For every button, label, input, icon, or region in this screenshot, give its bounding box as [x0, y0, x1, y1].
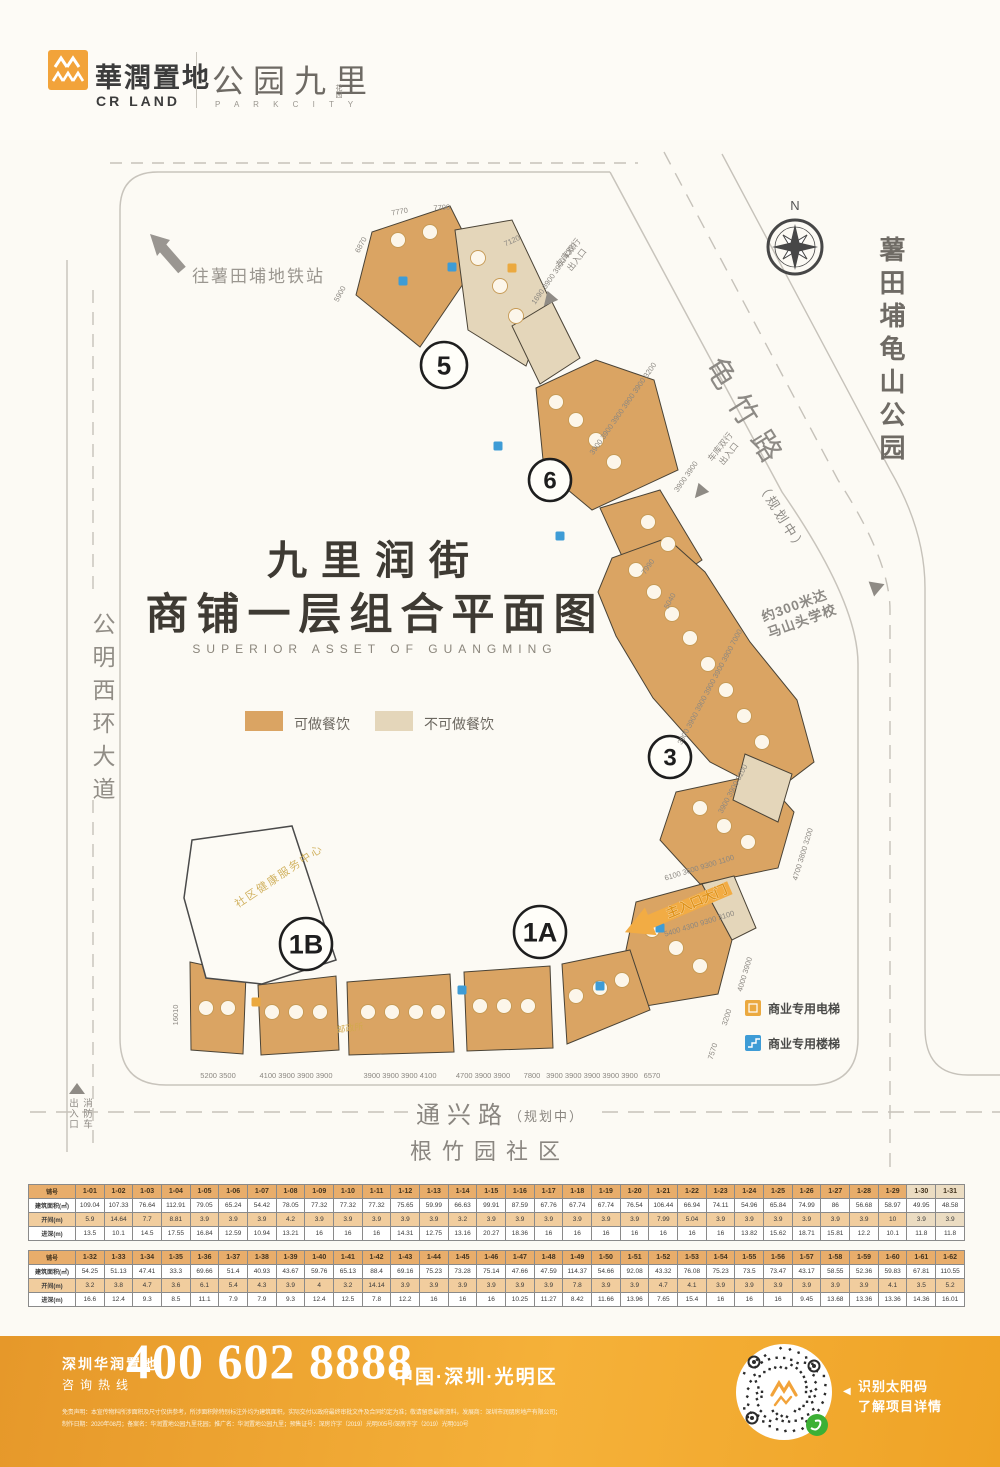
table-cell: 13.16 — [448, 1227, 477, 1241]
table-cell: 16 — [678, 1227, 707, 1241]
row-label: 进深(m) — [29, 1293, 76, 1307]
table-cell: 3.9 — [821, 1213, 850, 1227]
table-cell: 3.9 — [334, 1213, 363, 1227]
table-cell: 16 — [305, 1227, 334, 1241]
legend-stairs: 商业专用楼梯 — [745, 1035, 840, 1051]
table-cell: 67.81 — [907, 1265, 936, 1279]
table-cell: 65.13 — [334, 1265, 363, 1279]
table-cell: 59.99 — [420, 1199, 449, 1213]
table-cell: 1-40 — [305, 1251, 334, 1265]
qr-dot — [769, 1425, 771, 1427]
table-cell: 1-29 — [878, 1185, 907, 1199]
table-cell: 3.9 — [534, 1279, 563, 1293]
table-cell: 13.68 — [821, 1293, 850, 1307]
dimension-label: 7570 — [706, 1042, 719, 1061]
shop-number-marker — [669, 941, 684, 956]
table-cell: 4 — [305, 1279, 334, 1293]
shop-number-marker — [497, 999, 512, 1014]
legend-elevator-label: 商业专用电梯 — [768, 1001, 840, 1016]
table-cell: 66.94 — [678, 1199, 707, 1213]
row-label: 开间(m) — [29, 1213, 76, 1227]
table-cell: 114.37 — [563, 1265, 592, 1279]
table-cell: 3.9 — [391, 1213, 420, 1227]
table-cell: 1-48 — [534, 1251, 563, 1265]
table-cell: 1-03 — [133, 1185, 162, 1199]
table-cell: 4.1 — [678, 1279, 707, 1293]
table-cell: 7.9 — [219, 1293, 248, 1307]
table-cell: 3.9 — [821, 1279, 850, 1293]
table-cell: 77.32 — [362, 1199, 391, 1213]
stairs-icon — [448, 263, 457, 272]
table-cell: 16 — [334, 1227, 363, 1241]
table-row: 开间(m)5.914.647.78.813.93.93.94.23.93.93.… — [29, 1213, 965, 1227]
table-cell: 3.9 — [276, 1279, 305, 1293]
table-cell: 1-42 — [362, 1251, 391, 1265]
table-cell: 11.8 — [907, 1227, 936, 1241]
fire-entrance-label-2: 出入口 — [65, 1098, 79, 1130]
table-cell: 4.7 — [133, 1279, 162, 1293]
shop-number-marker — [265, 1005, 280, 1020]
table-cell: 1-37 — [219, 1251, 248, 1265]
table-cell: 3.9 — [534, 1213, 563, 1227]
table-cell: 16 — [534, 1227, 563, 1241]
shop-number-marker — [361, 1005, 376, 1020]
table-cell: 3.9 — [362, 1213, 391, 1227]
table-cell: 1-39 — [276, 1251, 305, 1265]
table-cell: 3.9 — [506, 1279, 535, 1293]
dimension-label: 6570 — [644, 1071, 661, 1080]
table-cell: 47.41 — [133, 1265, 162, 1279]
crland-logo-icon — [48, 50, 88, 90]
table-cell: 11.1 — [190, 1293, 219, 1307]
crland-name-en: CR LAND — [96, 93, 180, 109]
table-cell: 16 — [420, 1293, 449, 1307]
qr-dot — [805, 1391, 807, 1393]
table-cell: 14.36 — [907, 1293, 936, 1307]
shop-number-marker — [569, 989, 584, 1004]
subway-direction-label: 往薯田埔地铁站 — [192, 262, 325, 287]
table-cell: 14.64 — [104, 1213, 133, 1227]
table-cell: 54.96 — [735, 1199, 764, 1213]
table-cell: 3.2 — [76, 1279, 105, 1293]
table-cell: 3.9 — [735, 1213, 764, 1227]
table-cell: 73.5 — [735, 1265, 764, 1279]
table-cell: 87.59 — [506, 1199, 535, 1213]
table-cell: 7.7 — [133, 1213, 162, 1227]
table-cell: 1-53 — [678, 1251, 707, 1265]
table-cell: 3.9 — [907, 1213, 936, 1227]
footer: 深圳华润置地 咨询热线 400 602 8888 中国·深圳·光明区 ◀ 识别太… — [0, 1336, 1000, 1467]
table-cell: 16 — [620, 1227, 649, 1241]
fire-entrance-arrow-icon — [69, 1083, 85, 1094]
legend-catering-swatch — [245, 711, 283, 731]
table-cell: 13.5 — [76, 1227, 105, 1241]
shop-number-marker — [289, 1005, 304, 1020]
dimension-label: 16010 — [171, 1005, 180, 1026]
table-cell: 73.47 — [764, 1265, 793, 1279]
table-row: 建筑面积(㎡)109.04107.3376.64112.9179.0565.24… — [29, 1199, 965, 1213]
legend-elevator: 商业专用电梯 — [745, 1000, 840, 1016]
qr-dot — [801, 1417, 804, 1420]
table-cell: 4.2 — [276, 1213, 305, 1227]
table-cell: 14.14 — [362, 1279, 391, 1293]
table-cell: 1-18 — [563, 1185, 592, 1199]
table-cell: 3.9 — [735, 1279, 764, 1293]
table-cell: 3.9 — [592, 1279, 621, 1293]
table-cell: 4.3 — [248, 1279, 277, 1293]
qr-dot — [788, 1420, 791, 1423]
table-cell: 1-43 — [391, 1251, 420, 1265]
table-cell: 54.42 — [248, 1199, 277, 1213]
plan-title: 九里润街 — [0, 528, 750, 586]
table-cell: 106.44 — [649, 1199, 678, 1213]
table-cell: 16.6 — [76, 1293, 105, 1307]
table-cell: 15.4 — [678, 1293, 707, 1307]
dimension-label: 7800 — [524, 1071, 541, 1080]
table-cell: 16 — [477, 1293, 506, 1307]
table-cell: 58.55 — [821, 1265, 850, 1279]
table-cell: 76.64 — [133, 1199, 162, 1213]
table-cell: 3.9 — [706, 1213, 735, 1227]
table-cell: 1-47 — [506, 1251, 535, 1265]
table-cell: 1-13 — [420, 1185, 449, 1199]
zone-number: 5 — [437, 350, 451, 380]
shop-number-marker — [755, 735, 770, 750]
table-cell: 4.1 — [878, 1279, 907, 1293]
table-cell: 1-32 — [76, 1251, 105, 1265]
table-cell: 3.9 — [420, 1279, 449, 1293]
qr-dot — [824, 1384, 827, 1387]
qr-dot — [783, 1357, 785, 1359]
legend-no-catering-label: 不可做餐饮 — [424, 714, 494, 734]
table-cell: 1-25 — [764, 1185, 793, 1199]
table-cell: 48.58 — [936, 1199, 965, 1213]
qr-dot — [794, 1420, 796, 1422]
table-cell: 65.84 — [764, 1199, 793, 1213]
table-cell: 5.2 — [936, 1279, 965, 1293]
table-cell: 3.9 — [592, 1213, 621, 1227]
table-cell: 51.4 — [219, 1265, 248, 1279]
table-cell: 16 — [735, 1293, 764, 1307]
table-cell: 1-45 — [448, 1251, 477, 1265]
table-cell: 69.16 — [391, 1265, 420, 1279]
table-cell: 10.25 — [506, 1293, 535, 1307]
table-cell: 10.94 — [248, 1227, 277, 1241]
school-arrow-icon — [869, 577, 888, 597]
table-cell: 1-08 — [276, 1185, 305, 1199]
garage-entrance-1: 车库双行 出入口 — [706, 430, 744, 470]
table-cell: 3.8 — [104, 1279, 133, 1293]
shop-number-marker — [409, 1005, 424, 1020]
fire-entrance-label-1: 消防车 — [79, 1098, 93, 1130]
table-cell: 112.91 — [162, 1199, 191, 1213]
dimension-label: 7770 — [391, 206, 409, 218]
table-cell: 11.27 — [534, 1293, 563, 1307]
shop-number-marker — [221, 1001, 236, 1016]
table-cell: 56.68 — [850, 1199, 879, 1213]
table-cell: 1-20 — [620, 1185, 649, 1199]
table-row: 铺号1-321-331-341-351-361-371-381-391-401-… — [29, 1251, 965, 1265]
table-cell: 1-10 — [334, 1185, 363, 1199]
project-name-cn: 公园九里 — [212, 56, 376, 102]
table-cell: 1-54 — [706, 1251, 735, 1265]
table-cell: 7.9 — [248, 1293, 277, 1307]
table-cell: 3.9 — [936, 1213, 965, 1227]
qr-dot — [805, 1386, 808, 1389]
table-row: 铺号1-011-021-031-041-051-061-071-081-091-… — [29, 1185, 965, 1199]
table-cell: 12.2 — [850, 1227, 879, 1241]
dimension-label: 5900 — [332, 284, 348, 303]
table-cell: 16 — [706, 1293, 735, 1307]
shop-table-2: 铺号1-321-331-341-351-361-371-381-391-401-… — [28, 1250, 965, 1307]
shop-table-1: 铺号1-011-021-031-041-051-061-071-081-091-… — [28, 1184, 965, 1241]
table-cell: 3.9 — [563, 1213, 592, 1227]
row-label: 进深(m) — [29, 1227, 76, 1241]
table-cell: 3.2 — [448, 1213, 477, 1227]
table-cell: 1-41 — [334, 1251, 363, 1265]
table-cell: 12.4 — [104, 1293, 133, 1307]
qr-dot — [823, 1375, 825, 1377]
table-cell: 17.55 — [162, 1227, 191, 1241]
table-cell: 1-09 — [305, 1185, 334, 1199]
table-cell: 1-56 — [764, 1251, 793, 1265]
table-cell: 16 — [764, 1293, 793, 1307]
mountain-icon — [48, 50, 88, 90]
table-cell: 3.9 — [792, 1279, 821, 1293]
table-cell: 3.9 — [620, 1279, 649, 1293]
shop-number-marker — [313, 1005, 328, 1020]
table-cell: 3.9 — [850, 1279, 879, 1293]
shop-number-marker — [607, 455, 622, 470]
table-cell: 67.74 — [592, 1199, 621, 1213]
shop-number-marker — [693, 959, 708, 974]
table-cell: 7.8 — [362, 1293, 391, 1307]
poster-page: 華潤置地 CR LAND 公园九里 花园 P A R K C I T Y — [0, 0, 1000, 1467]
shop-number-marker — [741, 835, 756, 850]
table-cell: 8.81 — [162, 1213, 191, 1227]
qr-dot — [808, 1395, 811, 1398]
shop-number-marker — [493, 279, 508, 294]
table-cell: 1-61 — [907, 1251, 936, 1265]
table-cell: 16 — [649, 1227, 678, 1241]
table-cell: 52.36 — [850, 1265, 879, 1279]
dimension-label: 4000 3900 — [735, 956, 754, 993]
zone-number: 1B — [289, 930, 324, 960]
table-cell: 59.76 — [305, 1265, 334, 1279]
table-cell: 13.36 — [878, 1293, 907, 1307]
qr-dot — [802, 1405, 805, 1408]
table-cell: 3.6 — [162, 1279, 191, 1293]
qr-dot — [804, 1361, 807, 1364]
row-label: 建筑面积(㎡) — [29, 1265, 76, 1279]
table-cell: 9.3 — [276, 1293, 305, 1307]
table-cell: 3.5 — [907, 1279, 936, 1293]
qr-dot — [775, 1356, 778, 1359]
table-cell: 13.82 — [735, 1227, 764, 1241]
table-cell: 51.13 — [104, 1265, 133, 1279]
table-cell: 1-58 — [821, 1251, 850, 1265]
disclaimer-line2: 制作日期：2020年08月；备案名：华润置地公园九里花园；推广名：华润置地公园九… — [62, 1420, 622, 1430]
table-cell: 1-28 — [850, 1185, 879, 1199]
qr-dot — [805, 1356, 808, 1359]
table-cell: 3.9 — [305, 1213, 334, 1227]
table-cell: 12.59 — [219, 1227, 248, 1241]
table-cell: 76.54 — [620, 1199, 649, 1213]
table-cell: 1-14 — [448, 1185, 477, 1199]
table-cell: 67.74 — [563, 1199, 592, 1213]
table-cell: 47.59 — [534, 1265, 563, 1279]
table-cell: 11.8 — [936, 1227, 965, 1241]
table-cell: 10 — [878, 1213, 907, 1227]
table-row: 建筑面积(㎡)54.2551.1347.4133.369.6651.440.93… — [29, 1265, 965, 1279]
table-cell: 15.81 — [821, 1227, 850, 1241]
south-road-note: （规划中） — [509, 1109, 584, 1124]
legend-catering-label: 可做餐饮 — [294, 714, 350, 734]
table-cell: 49.95 — [907, 1199, 936, 1213]
row-label: 铺号 — [29, 1185, 76, 1199]
table-cell: 1-59 — [850, 1251, 879, 1265]
qr-dot — [758, 1375, 761, 1378]
qr-dot — [760, 1395, 763, 1398]
table-cell: 1-60 — [878, 1251, 907, 1265]
qr-dot — [761, 1391, 763, 1393]
shop-number-marker — [423, 225, 438, 240]
zone-number: 6 — [543, 468, 556, 495]
crland-name-cn: 華潤置地 — [95, 56, 211, 95]
shop-number-marker — [471, 251, 486, 266]
table-cell: 13.96 — [620, 1293, 649, 1307]
table-cell: 75.23 — [706, 1265, 735, 1279]
park-name-label: 薯田埔龟山公园 — [872, 236, 909, 467]
shop-number-marker — [549, 395, 564, 410]
table-cell: 67.76 — [534, 1199, 563, 1213]
dimension-label: 7700 — [433, 202, 450, 212]
table-cell: 3.2 — [334, 1279, 363, 1293]
table-cell: 18.36 — [506, 1227, 535, 1241]
table-cell: 1-38 — [248, 1251, 277, 1265]
qr-dot — [806, 1401, 808, 1403]
table-cell: 8.42 — [563, 1293, 592, 1307]
compass-north-label: N — [790, 198, 799, 213]
table-cell: 3.9 — [477, 1279, 506, 1293]
table-cell: 3.9 — [792, 1213, 821, 1227]
table-cell: 16 — [563, 1227, 592, 1241]
table-cell: 40.93 — [248, 1265, 277, 1279]
dimension-label: 6870 — [353, 235, 369, 254]
site-plan: 社区健康服务中心 邮政所 N 龟竹路 （规划中） 约300米达 — [0, 140, 1000, 1180]
table-cell: 12.75 — [420, 1227, 449, 1241]
table-cell: 73.28 — [448, 1265, 477, 1279]
dimension-label: 4700 3900 3900 — [456, 1071, 510, 1080]
table-cell: 7.8 — [563, 1279, 592, 1293]
plan-subtitle: 商铺一层组合平面图 — [0, 580, 750, 642]
qr-dot — [790, 1358, 793, 1361]
shop-number-marker — [615, 973, 630, 988]
table-cell: 77.32 — [305, 1199, 334, 1213]
table-cell: 1-04 — [162, 1185, 191, 1199]
table-cell: 16.84 — [190, 1227, 219, 1241]
table-cell: 3.9 — [190, 1213, 219, 1227]
qr-dot — [743, 1407, 745, 1409]
compass-icon — [768, 220, 822, 274]
south-road-name: 通兴路（规划中） — [408, 1095, 592, 1130]
table-cell: 86 — [821, 1199, 850, 1213]
table-cell: 3.9 — [764, 1213, 793, 1227]
shop-number-marker — [385, 1005, 400, 1020]
shop-number-marker — [391, 233, 406, 248]
zone-number: 3 — [663, 745, 676, 772]
table-cell: 1-57 — [792, 1251, 821, 1265]
table-cell: 33.3 — [162, 1265, 191, 1279]
dimension-label: 4100 3900 3900 3900 — [260, 1071, 333, 1080]
dimension-label: 3900 3900 3900 3900 3900 — [546, 1071, 638, 1080]
table-cell: 5.9 — [76, 1213, 105, 1227]
table-cell: 3.9 — [391, 1279, 420, 1293]
table-cell: 1-31 — [936, 1185, 965, 1199]
table-cell: 15.62 — [764, 1227, 793, 1241]
table-cell: 1-26 — [792, 1185, 821, 1199]
stairs-icon — [458, 986, 467, 995]
table-cell: 7.65 — [649, 1293, 678, 1307]
table-cell: 7.99 — [649, 1213, 678, 1227]
table-cell: 1-44 — [420, 1251, 449, 1265]
table-cell: 5.4 — [219, 1279, 248, 1293]
qr-dot — [768, 1368, 771, 1371]
table-cell: 16 — [592, 1227, 621, 1241]
header: 華潤置地 CR LAND 公园九里 花园 P A R K C I T Y — [0, 0, 1000, 140]
dimension-label: 5200 3500 — [200, 1071, 235, 1080]
project-suffix: 花园 — [334, 84, 343, 98]
shop-number-marker — [693, 801, 708, 816]
shop-number-marker — [473, 999, 488, 1014]
site-plan-canvas: 社区健康服务中心 邮政所 N 龟竹路 （规划中） 约300米达 — [0, 140, 1000, 1180]
table-cell: 74.99 — [792, 1199, 821, 1213]
row-label: 开间(m) — [29, 1279, 76, 1293]
table-cell: 16.01 — [936, 1293, 965, 1307]
qr-dot — [762, 1420, 765, 1423]
table-cell: 1-12 — [391, 1185, 420, 1199]
table-cell: 1-50 — [592, 1251, 621, 1265]
legend-stairs-label: 商业专用楼梯 — [768, 1036, 840, 1051]
table-cell: 43.32 — [649, 1265, 678, 1279]
subway-arrow-icon — [150, 234, 182, 270]
school-annotation: 约300米达 马山头学校 — [759, 566, 889, 640]
table-cell: 3.9 — [620, 1213, 649, 1227]
table-cell: 1-05 — [190, 1185, 219, 1199]
community-label: 根竹园社区 — [360, 1134, 620, 1166]
table-cell: 12.2 — [391, 1293, 420, 1307]
table-cell: 109.04 — [76, 1199, 105, 1213]
table-cell: 1-24 — [735, 1185, 764, 1199]
shop-number-marker — [431, 1005, 446, 1020]
table-cell: 1-46 — [477, 1251, 506, 1265]
table-cell: 20.27 — [477, 1227, 506, 1241]
shop-number-marker — [509, 309, 524, 324]
table-cell: 6.1 — [190, 1279, 219, 1293]
table-cell: 3.9 — [850, 1213, 879, 1227]
table-cell: 99.91 — [477, 1199, 506, 1213]
table-cell: 1-34 — [133, 1251, 162, 1265]
zone-number: 1A — [523, 918, 558, 948]
table-cell: 1-49 — [563, 1251, 592, 1265]
qr-code — [726, 1334, 842, 1450]
table-cell: 1-27 — [821, 1185, 850, 1199]
footer-location: 中国·深圳·光明区 — [394, 1362, 558, 1389]
row-label: 铺号 — [29, 1251, 76, 1265]
shop-number-marker — [719, 683, 734, 698]
legend-no-catering-swatch — [375, 711, 413, 731]
dimension-label: 4700 3800 3200 — [790, 827, 814, 881]
